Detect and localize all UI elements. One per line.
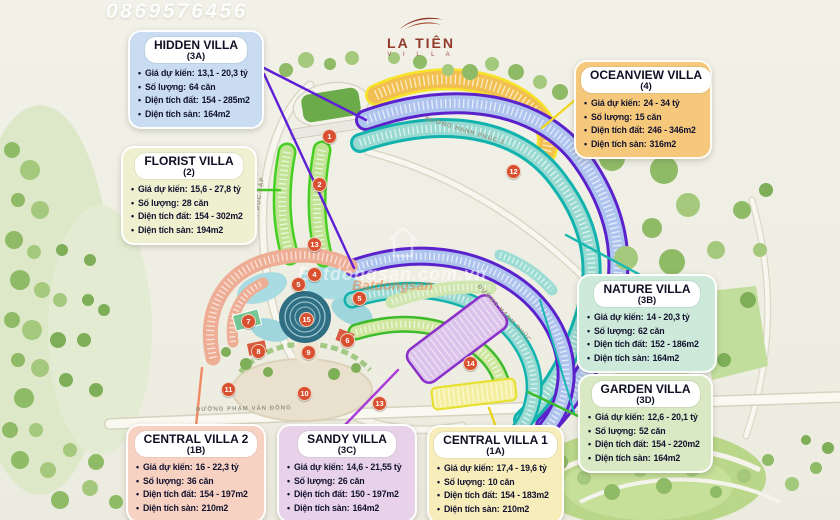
masterplan-poster: 0869576456 Batdongsan.com.vn Batdongsan … (0, 0, 840, 520)
spec-floor-area: Diện tích sàn:164m2 (587, 352, 710, 366)
villa-title: CENTRAL VILLA 1(1A) (434, 432, 557, 458)
map-marker: 5 (352, 291, 367, 306)
map-marker: 7 (241, 314, 256, 329)
villa-specs: Giá dự kiến:14 - 20,3 tỷ Số lượng:62 căn… (584, 311, 710, 366)
spec-floor-area: Diện tích sàn:164m2 (287, 502, 410, 516)
villa-title: NATURE VILLA(3B) (594, 281, 699, 307)
map-marker: 1 (322, 129, 337, 144)
map-marker: 5 (291, 277, 306, 292)
logo-tagline: V I L L A (377, 52, 465, 58)
spec-quantity: Số lượng:36 căn (136, 475, 259, 489)
map-marker: 8 (251, 344, 266, 359)
spec-quantity: Số lượng:28 căn (131, 197, 250, 211)
map-marker: 12 (506, 164, 521, 179)
villa-specs: Giá dự kiến:14,6 - 21,55 tỷ Số lượng:26 … (284, 461, 410, 516)
villa-specs: Giá dự kiến:15,6 - 27,8 tỷ Số lượng:28 c… (128, 183, 250, 238)
villa-specs: Giá dự kiến:24 - 34 tỷ Số lượng:15 căn D… (581, 97, 705, 152)
spec-price: Giá dự kiến:12,6 - 20,1 tỷ (588, 411, 706, 425)
spec-land-area: Diện tích đất:152 - 186m2 (587, 338, 710, 352)
spec-land-area: Diện tích đất:154 - 197m2 (136, 488, 259, 502)
logo-name: LA TIÊN (377, 35, 465, 51)
spec-land-area: Diện tích đất:150 - 197m2 (287, 488, 410, 502)
villa-specs: Giá dự kiến:16 - 22,3 tỷ Số lượng:36 căn… (133, 461, 259, 516)
villa-specs: Giá dự kiến:17,4 - 19,6 tỷ Số lượng:10 c… (434, 462, 557, 517)
spec-quantity: Số lượng:10 căn (437, 476, 557, 490)
villa-title: CENTRAL VILLA 2(1B) (135, 431, 258, 457)
villa-specs: Giá dự kiến:13,1 - 20,3 tỷ Số lượng:64 c… (135, 67, 257, 122)
villa-card-oceanview: OCEANVIEW VILLA(4) Giá dự kiến:24 - 34 t… (574, 60, 712, 159)
villa-card-hidden: HIDDEN VILLA(3A) Giá dự kiến:13,1 - 20,3… (128, 30, 264, 129)
spec-land-area: Diện tích đất:154 - 220m2 (588, 438, 706, 452)
spec-price: Giá dự kiến:14,6 - 21,55 tỷ (287, 461, 410, 475)
map-marker: 15 (299, 312, 314, 327)
map-marker: 10 (297, 386, 312, 401)
spec-price: Giá dự kiến:17,4 - 19,6 tỷ (437, 462, 557, 476)
map-marker: 14 (463, 356, 478, 371)
project-logo: LA TIÊN V I L L A (377, 14, 465, 58)
spec-floor-area: Diện tích sàn:164m2 (138, 108, 257, 122)
villa-card-nature: NATURE VILLA(3B) Giá dự kiến:14 - 20,3 t… (577, 274, 717, 373)
villa-card-florist: FLORIST VILLA(2) Giá dự kiến:15,6 - 27,8… (121, 146, 257, 245)
spec-price: Giá dự kiến:15,6 - 27,8 tỷ (131, 183, 250, 197)
spec-floor-area: Diện tích sàn:194m2 (131, 224, 250, 238)
spec-price: Giá dự kiến:24 - 34 tỷ (584, 97, 705, 111)
villa-title: OCEANVIEW VILLA(4) (581, 67, 711, 93)
spec-quantity: Số lượng:15 căn (584, 111, 705, 125)
map-marker: 13 (372, 396, 387, 411)
villa-title: GARDEN VILLA(3D) (592, 381, 700, 407)
villa-specs: Giá dự kiến:12,6 - 20,1 tỷ Số lượng:52 c… (585, 411, 706, 466)
spec-land-area: Diện tích đất:246 - 346m2 (584, 124, 705, 138)
villa-title: SANDY VILLA(3C) (298, 431, 396, 457)
villa-title: HIDDEN VILLA(3A) (145, 37, 247, 63)
villa-title: FLORIST VILLA(2) (135, 153, 242, 179)
spec-quantity: Số lượng:62 căn (587, 325, 710, 339)
spec-floor-area: Diện tích sàn:210m2 (136, 502, 259, 516)
spec-floor-area: Diện tích sàn:210m2 (437, 503, 557, 517)
spec-quantity: Số lượng:64 căn (138, 81, 257, 95)
villa-card-central-1: CENTRAL VILLA 1(1A) Giá dự kiến:17,4 - 1… (427, 425, 564, 520)
map-marker: 2 (312, 177, 327, 192)
villa-card-garden: GARDEN VILLA(3D) Giá dự kiến:12,6 - 20,1… (578, 374, 713, 473)
map-marker: 11 (221, 382, 236, 397)
map-marker: 9 (301, 345, 316, 360)
house-watermark-icon (386, 222, 420, 267)
spec-quantity: Số lượng:52 căn (588, 425, 706, 439)
villa-card-central-2: CENTRAL VILLA 2(1B) Giá dự kiến:16 - 22,… (126, 424, 266, 520)
map-marker: 4 (307, 267, 322, 282)
spec-price: Giá dự kiến:16 - 22,3 tỷ (136, 461, 259, 475)
logo-mountain-icon (393, 14, 449, 32)
map-marker: 6 (340, 333, 355, 348)
map-marker: 13 (307, 237, 322, 252)
spec-land-area: Diện tích đất:154 - 183m2 (437, 489, 557, 503)
phone-watermark: 0869576456 (106, 0, 248, 24)
spec-floor-area: Diện tích sàn:316m2 (584, 138, 705, 152)
spec-floor-area: Diện tích sàn:164m2 (588, 452, 706, 466)
spec-land-area: Diện tích đất:154 - 302m2 (131, 210, 250, 224)
spec-quantity: Số lượng:26 căn (287, 475, 410, 489)
spec-price: Giá dự kiến:13,1 - 20,3 tỷ (138, 67, 257, 81)
villa-card-sandy: SANDY VILLA(3C) Giá dự kiến:14,6 - 21,55… (277, 424, 417, 520)
spec-price: Giá dự kiến:14 - 20,3 tỷ (587, 311, 710, 325)
spec-land-area: Diện tích đất:154 - 285m2 (138, 94, 257, 108)
